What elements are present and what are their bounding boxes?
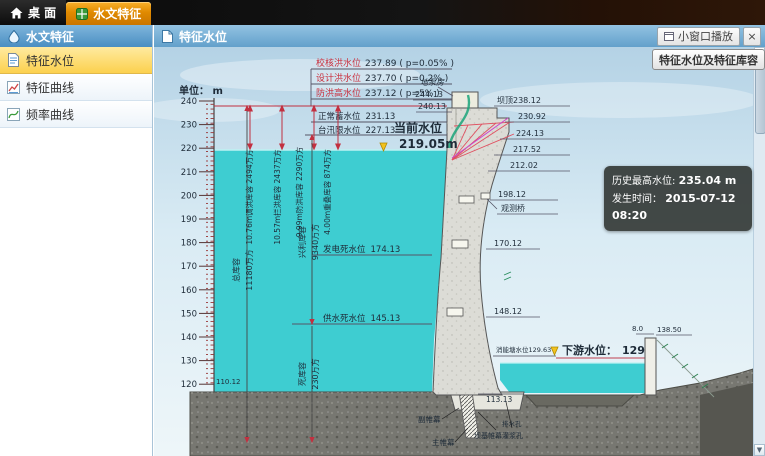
tailwater [500,363,645,393]
ruler-tick: 210 [181,168,197,178]
panel-title: 特征水位 [179,28,227,45]
unit-label: 单位： m [179,84,223,97]
elev-212: 212.02 [510,161,538,170]
vertical-scrollbar: ▲ ▼ [753,47,765,456]
pump-elev-mid: 240.13 [418,102,446,111]
aux-curtain-label: 副帷幕 [418,414,441,424]
app-window: 桌 面 水文特征 水文特征 特征水位 特征曲线 频率曲线 特征水位 [0,0,765,456]
elev-217: 217.52 [513,145,541,154]
ruler-tick: 200 [181,191,197,201]
ruler-tick: 170 [181,262,197,272]
line-chart-icon [7,81,20,94]
feature-capacity-button[interactable]: 特征水位及特征库容 [652,49,765,70]
close-button[interactable]: × [743,27,761,46]
history-time-row: 发生时间： 2015-07-12 08:20 [612,190,744,225]
face-elev-170: 170.12 [494,239,522,248]
tab-hydrology-label: 水文特征 [93,5,141,22]
stilling-level-label: 消能塘水位129.63 [496,345,551,354]
tail-level-label: 下游水位： [562,343,617,357]
ruler-tick: 180 [181,239,197,249]
sidebar-item-label: 频率曲线 [26,106,74,123]
scroll-thumb[interactable] [755,60,765,134]
obs-elev: 198.12 [498,190,526,199]
ruler-tick: 120 [181,380,197,390]
feature-capacity-button-label: 特征水位及特征库容 [659,52,758,68]
tab-desktop[interactable]: 桌 面 [0,0,66,25]
elev-224: 224.13 [516,129,544,138]
supply-dead-level: 供水死水位145.13 [323,313,400,324]
current-level-value: 219.05m [399,137,458,151]
bed-elev-label: 110.12 [216,378,241,386]
sidebar-item-feature-curve[interactable]: 特征曲线 [0,74,152,101]
check-flood-level: 校核洪水位237.89 ( p=0.05% ) [316,57,454,69]
dead-storage-name: 死库容 [297,362,307,386]
power-dead-level: 发电死水位174.13 [323,244,400,255]
sidebar-header: 水文特征 [0,25,152,47]
sidebar: 水文特征 特征水位 特征曲线 频率曲线 [0,25,153,456]
capacity-label: 9.99m防洪库容 2290万方 [294,146,304,237]
small-window-button[interactable]: 小窗口播放 [657,27,740,46]
page-icon [162,30,173,43]
sidebar-title: 水文特征 [26,28,74,45]
normal-level: 正常蓄水位231.13 [318,111,395,122]
current-level-label: 当前水位 [394,120,442,135]
capacity-label: 10.57m拦洪库容 2437万方 [272,149,282,245]
apron-elev-label: 113.13 [486,395,512,404]
grid-icon [76,8,88,20]
window-icon [664,32,674,41]
document-icon [7,53,20,67]
grout-curtain-label: 坝基帷幕灌浆孔 [474,431,523,440]
total-storage-name: 总库容 [231,258,241,282]
droplet-icon [8,30,20,43]
sidebar-item-frequency-curve[interactable]: 频率曲线 [0,101,152,128]
dead-storage-value: 230万方 [310,358,320,389]
scroll-down-button[interactable]: ▼ [754,444,765,456]
capacity-label: 4.00m重叠库容 874万方 [322,149,332,235]
panel-header: 特征水位 小窗口播放 × [154,25,765,47]
total-storage-value: 11180万方 [244,249,254,290]
tab-hydrology[interactable]: 水文特征 [66,2,151,25]
history-info-box: 历史最高水位: 235.04 m 发生时间： 2015-07-12 08:20 [604,166,752,231]
face-elev-148: 148.12 [494,307,522,316]
main-curtain-label: 主帷幕 [432,437,455,447]
wall-width-label: 8.0 [632,325,643,333]
obs-bridge-label: 观测桥 [501,203,525,213]
dam-cross-section-diagram: 240 230 220 210 200 190 180 170 160 150 … [154,47,753,456]
beneficial-storage-name: 兴利库容 [297,226,307,258]
pump-elev-top: 244.13 [415,90,443,99]
pump-house-label: 地泵房 [420,78,445,87]
wall-elev-label: 138.50 [657,326,682,334]
tailwater-labels: 消能塘水位129.63 下游水位： 129m [493,343,656,358]
capacity-label: 10.76m调洪库容 2494万方 [244,149,254,245]
ruler-tick: 160 [181,286,197,296]
sidebar-item-label: 特征曲线 [26,79,74,96]
ruler-tick: 140 [181,333,197,343]
ruler-tick: 230 [181,121,197,131]
small-window-label: 小窗口播放 [678,28,733,44]
diagram-content: 240 230 220 210 200 190 180 170 160 150 … [154,47,753,456]
ruler-tick: 150 [181,309,197,319]
ruler-tick: 240 [181,97,197,107]
top-taskbar: 桌 面 水文特征 [0,0,765,25]
panel-header-controls: 小窗口播放 × [657,27,761,46]
flood-limit-level: 台汛限水位227.13 [318,125,395,136]
history-max-level-label: 历史最高水位: [612,176,675,187]
sidebar-item-feature-level[interactable]: 特征水位 [0,47,152,74]
curve-chart-icon [7,108,20,121]
close-icon: × [747,30,756,43]
ruler-tick: 220 [181,144,197,154]
history-max-level-value: 235.04 m [679,174,737,187]
history-max-level-row: 历史最高水位: 235.04 m [612,172,744,190]
beneficial-storage-value: 9340万方 [310,224,320,260]
elev-230: 230.92 [518,112,546,121]
tab-desktop-label: 桌 面 [28,4,56,21]
sidebar-item-label: 特征水位 [26,52,74,69]
history-time-label: 发生时间： [612,194,662,205]
ruler-tick: 130 [181,357,197,367]
ruler-tick: 190 [181,215,197,225]
crest-label: 坝顶238.12 [497,96,541,105]
home-icon [10,7,23,19]
